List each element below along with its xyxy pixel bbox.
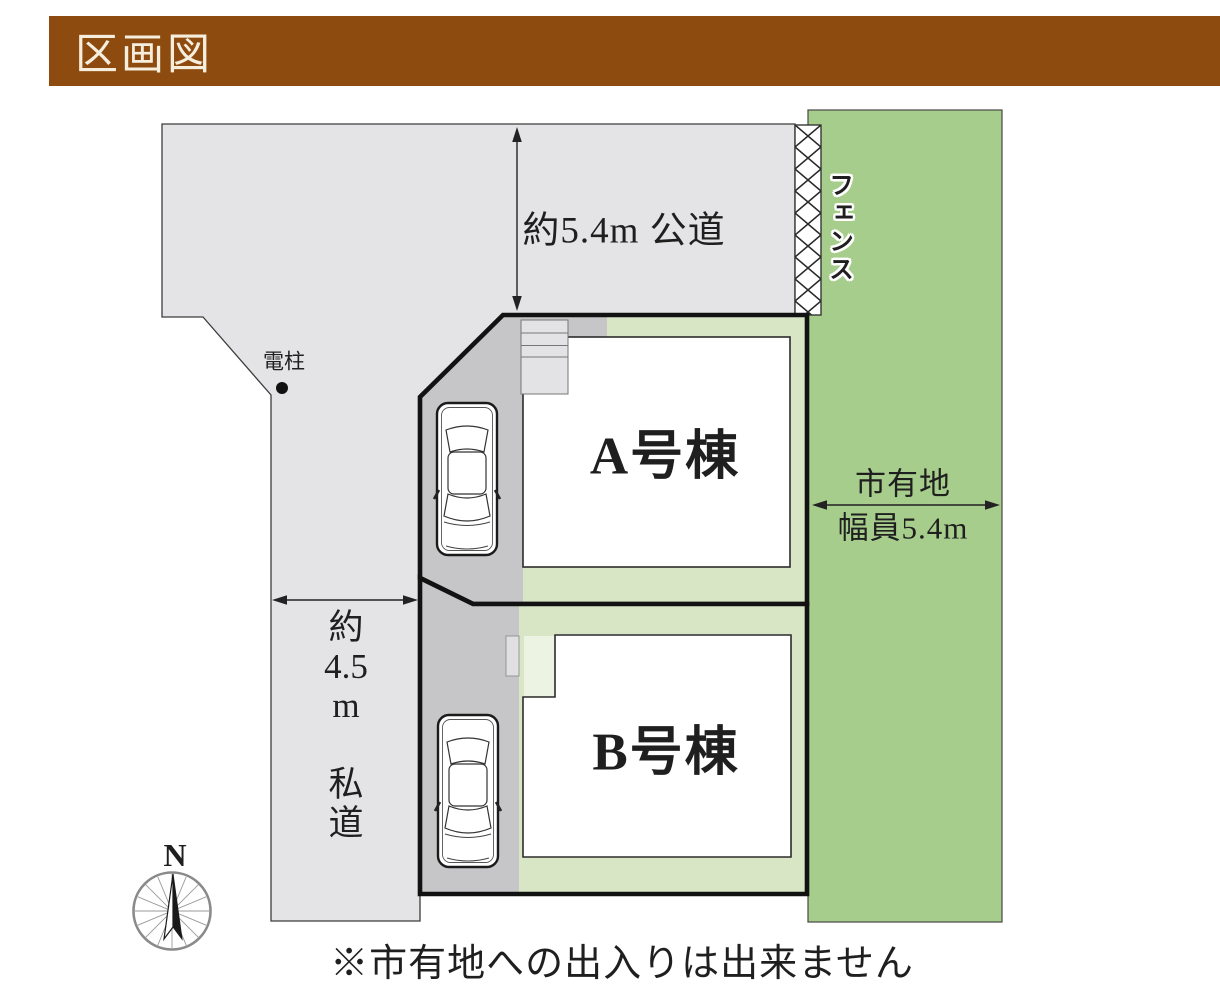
top-road-label: 約5.4m 公道 [522, 213, 725, 250]
city-land-name-label: 市有地 [855, 469, 951, 500]
plot-map-page: 区画図 [0, 0, 1220, 1000]
fence-strip [795, 125, 821, 315]
porch-b [506, 636, 519, 676]
compass-rose [134, 873, 211, 950]
note-text: ※市有地への出入りは出来ません [330, 945, 914, 983]
city-land-width-label: 幅員5.4m [838, 513, 969, 544]
plot-a-label: A号棟 [590, 431, 740, 484]
fence-label: フェンス [827, 172, 852, 284]
porch-a [521, 320, 568, 394]
plot-b-label: B号棟 [592, 727, 739, 780]
car-a [434, 403, 500, 555]
left-road-label: 約 4.5 m 私 道 [324, 608, 368, 843]
utility-pole-dot [276, 382, 288, 394]
compass-north-label: N [163, 839, 186, 871]
car-b [435, 715, 501, 867]
utility-pole-label: 電柱 [263, 352, 305, 373]
